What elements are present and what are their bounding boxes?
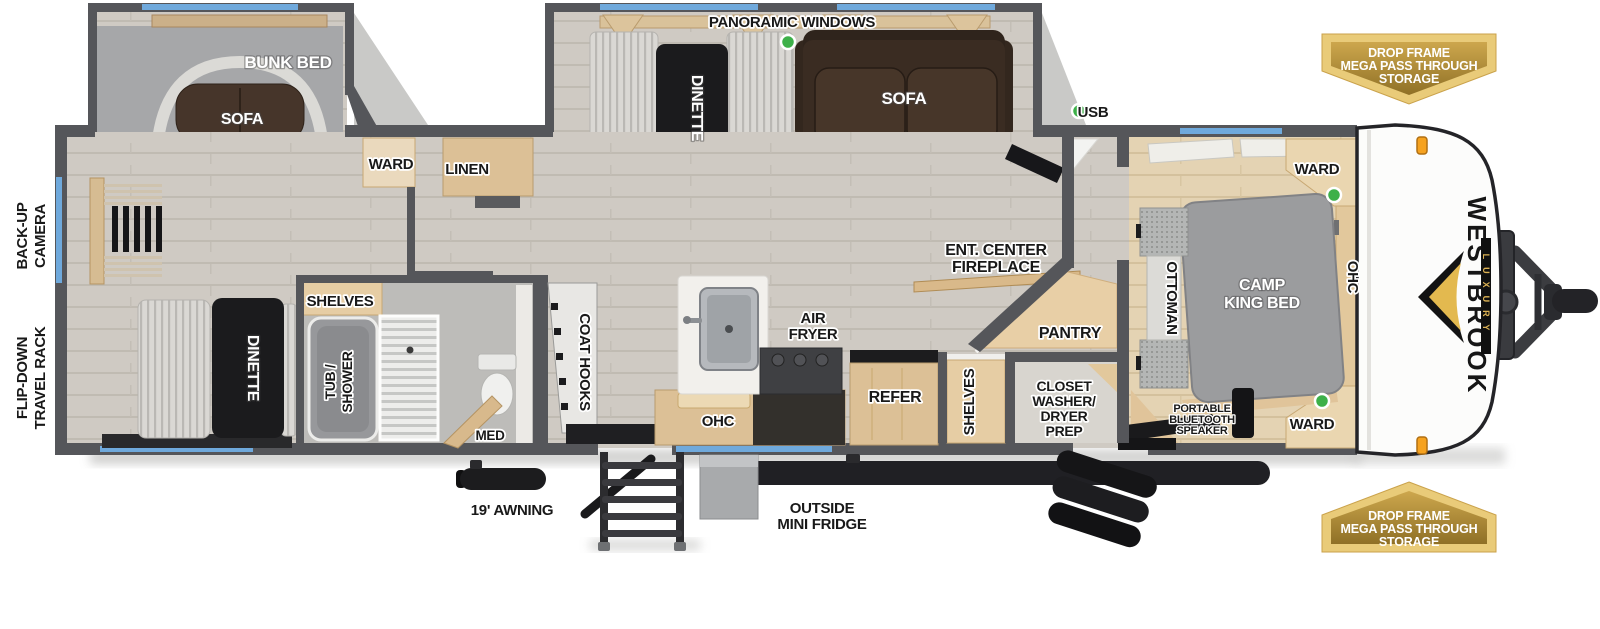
label-usb: USB [1078,104,1109,121]
window-strip [600,4,758,10]
label-outside-fridge: MINI FRIDGE [777,516,866,533]
marker-light [1417,137,1427,154]
label-sofa-main: SOFA [881,89,926,108]
label-ohc-bedroom: OHC [1344,261,1361,294]
hitch-tongue [1495,231,1598,359]
storage-badge-top: DROP FRAME MEGA PASS THROUGH STORAGE [1322,34,1496,104]
label-closet: PREP [1046,423,1083,439]
badge-line: DROP FRAME [1368,509,1450,523]
label-med: MED [475,428,505,443]
entry-landing [566,424,664,444]
label-closet: CLOSET [1037,378,1093,394]
sink-island [678,276,768,394]
label-closet: WASHER/ [1032,393,1096,409]
outside-mini-fridge [700,455,758,519]
ward-indicator [1315,394,1329,408]
label-flip-down-rack: TRAVEL RACK [32,326,49,429]
label-ottoman: OTTOMAN [1163,261,1180,334]
shower-door [380,316,438,440]
window-strip [676,446,832,452]
label-ent-center: FIREPLACE [952,259,1041,276]
label-dinette-rear: DINETTE [244,335,261,402]
label-tub-shower: TUB / [322,364,338,399]
label-air-fryer: AIR [801,310,826,327]
window-strip [142,4,298,10]
label-linen: LINEN [445,161,489,178]
label-camp-king-bed: KING BED [1224,295,1300,312]
label-pantry: PANTRY [1039,325,1102,342]
label-camp-king-bed: CAMP [1239,277,1286,294]
label-panoramic-windows: PANORAMIC WINDOWS [709,14,876,31]
label-backup-camera: CAMERA [32,204,49,268]
marker-light [1417,437,1427,454]
label-sofa-bunk: SOFA [221,111,264,128]
floorplan-canvas: WESTBROOK LUXURY DROP FRAME MEGA PASS TH… [0,0,1600,629]
label-backup-camera: BACK-UP [14,202,31,269]
window-strip [1180,128,1282,134]
panoramic-window-indicator [781,35,795,49]
label-refer: REFER [869,389,922,406]
label-tub-shower: SHOWER [339,351,355,412]
label-closet: DRYER [1041,408,1088,424]
label-air-fryer: FRYER [789,326,838,343]
badge-line: DROP FRAME [1368,46,1450,60]
label-coat-hooks: COAT HOOKS [576,313,593,411]
label-flip-down-rack: FLIP-DOWN [14,337,31,419]
label-shelves-kitchen: SHELVES [961,368,978,435]
window-strip [56,177,62,283]
label-shelves-bath: SHELVES [307,293,374,310]
badge-line: MEGA PASS THROUGH [1341,522,1478,536]
label-awning: 19' AWNING [471,502,554,519]
rear-dinette-bench [138,300,210,438]
label-ward-bed-bottom: WARD [1290,416,1335,433]
label-ohc-kitchen: OHC [702,413,735,430]
window-strip [837,4,995,10]
toilet [478,354,516,370]
ward-indicator [1327,188,1341,202]
label-ent-center: ENT. CENTER [945,242,1047,259]
label-outside-fridge: OUTSIDE [790,500,855,517]
brand-sub: LUXURY [1481,254,1491,339]
awning-rail [700,461,1270,485]
badge-line: MEGA PASS THROUGH [1341,59,1478,73]
front-cap: WESTBROOK LUXURY [1357,125,1501,455]
range-air-fryer [760,348,842,394]
badge-line: STORAGE [1379,535,1439,549]
storage-badge-bottom: DROP FRAME MEGA PASS THROUGH STORAGE [1322,482,1496,552]
badge-line: STORAGE [1379,72,1439,86]
label-dinette-slide: DINETTE [688,75,705,142]
main-sofa [795,30,1013,146]
rv-floorplan-diagram: WESTBROOK LUXURY DROP FRAME MEGA PASS TH… [0,0,1600,629]
label-bt-speaker: SPEAKER [1176,425,1227,437]
bluetooth-speaker [1232,388,1254,438]
label-bunk-bed: BUNK BED [244,53,331,72]
entry-steps [598,452,686,551]
awning-roller [456,460,546,490]
label-ward-rear: WARD [369,156,414,173]
label-ward-bed-top: WARD [1295,161,1340,178]
